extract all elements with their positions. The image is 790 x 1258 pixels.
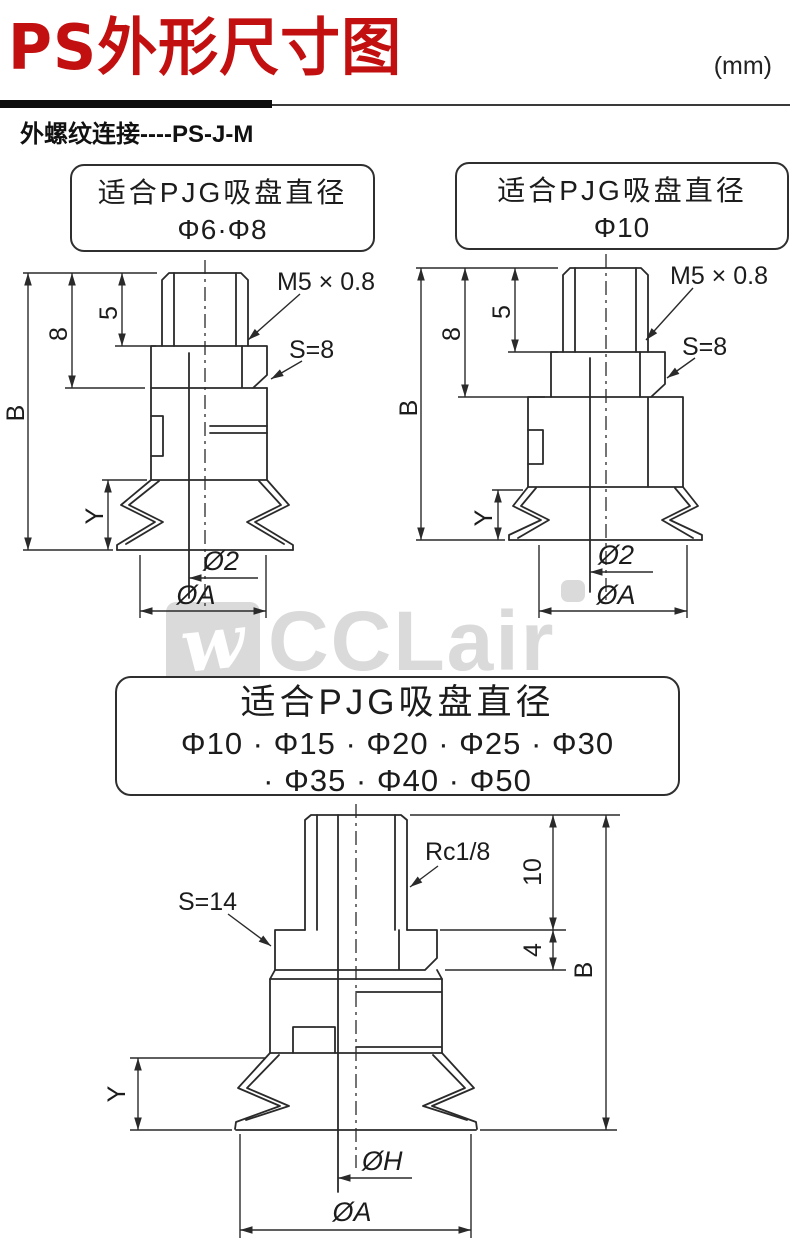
wrench-flat-label: S=8 — [682, 333, 727, 361]
page-title: PS外形尺寸图 — [8, 14, 402, 83]
dim-label-bellows-y: Y — [470, 509, 498, 526]
technical-drawing-right: B 8 5 Y M5 × 0.8 S=8 Ø2 ØA — [395, 250, 790, 640]
callout-cup-sizes-small-2: 适合PJG吸盘直径 Φ10 — [455, 162, 789, 250]
dia-hole-label: ØH — [361, 1146, 403, 1176]
dim-label-shank-8: 8 — [438, 327, 466, 341]
thread-spec-label: M5 × 0.8 — [277, 268, 375, 296]
callout-sizes: · Φ35 · Φ40 · Φ50 — [263, 763, 532, 799]
technical-drawing-left: B 8 5 Y M5 × 0.8 S=8 Ø2 ØA — [5, 258, 390, 640]
callout-sizes: Φ6·Φ8 — [177, 214, 267, 246]
drawing-bottom-labels: S=14 Rc1/8 10 4 B Y ØH ØA — [103, 838, 598, 1227]
thread-spec-label: Rc1/8 — [425, 838, 490, 866]
dim-label-overall-b: B — [570, 962, 598, 979]
dia-cup-label: ØA — [595, 580, 635, 610]
dim-label-thread-5: 5 — [488, 305, 516, 319]
dia-cup-label: ØA — [175, 580, 215, 610]
page: PS外形尺寸图 (mm) 外螺纹连接----PS-J-M w CCLair 适合… — [0, 0, 790, 1258]
header-divider-thick — [0, 100, 272, 108]
callout-text: 适合PJG吸盘直径 — [497, 169, 746, 209]
callout-text: 适合PJG吸盘直径 — [240, 674, 554, 725]
dim-label-hex-4: 4 — [519, 943, 547, 957]
wrench-flat-label: S=8 — [289, 336, 334, 364]
dim-label-bellows-y: Y — [81, 507, 109, 524]
technical-drawing-bottom: S=14 Rc1/8 10 4 B Y ØH ØA — [100, 800, 660, 1258]
callout-cup-sizes-large: 适合PJG吸盘直径 Φ10 · Φ15 · Φ20 · Φ25 · Φ30 · … — [115, 676, 680, 796]
dim-label-thread-5: 5 — [95, 306, 123, 320]
drawing-right-labels: B 8 5 Y M5 × 0.8 S=8 Ø2 ØA — [395, 262, 768, 610]
wrench-flat-label: S=14 — [178, 888, 237, 916]
dia-orifice-label: Ø2 — [597, 540, 634, 570]
callout-sizes: Φ10 · Φ15 · Φ20 · Φ25 · Φ30 — [181, 726, 614, 762]
dim-label-overall-b: B — [395, 400, 423, 417]
drawing-left-labels: B 8 5 Y M5 × 0.8 S=8 Ø2 ØA — [5, 268, 375, 610]
thread-spec-label: M5 × 0.8 — [670, 262, 768, 290]
connection-type-subtitle: 外螺纹连接----PS-J-M — [20, 114, 253, 149]
dia-orifice-label: Ø2 — [202, 546, 239, 576]
dim-label-shank-8: 8 — [45, 327, 73, 341]
drawing-right-dimensions — [416, 268, 695, 618]
dim-label-overall-b: B — [5, 405, 30, 422]
dim-label-thread-10: 10 — [519, 858, 547, 886]
unit-label: (mm) — [714, 52, 772, 81]
callout-cup-sizes-small-1: 适合PJG吸盘直径 Φ6·Φ8 — [70, 164, 375, 252]
callout-text: 适合PJG吸盘直径 — [98, 171, 347, 211]
dim-label-bellows-y: Y — [103, 1085, 131, 1102]
callout-sizes: Φ10 — [594, 212, 650, 244]
dia-cup-label: ØA — [331, 1197, 371, 1227]
